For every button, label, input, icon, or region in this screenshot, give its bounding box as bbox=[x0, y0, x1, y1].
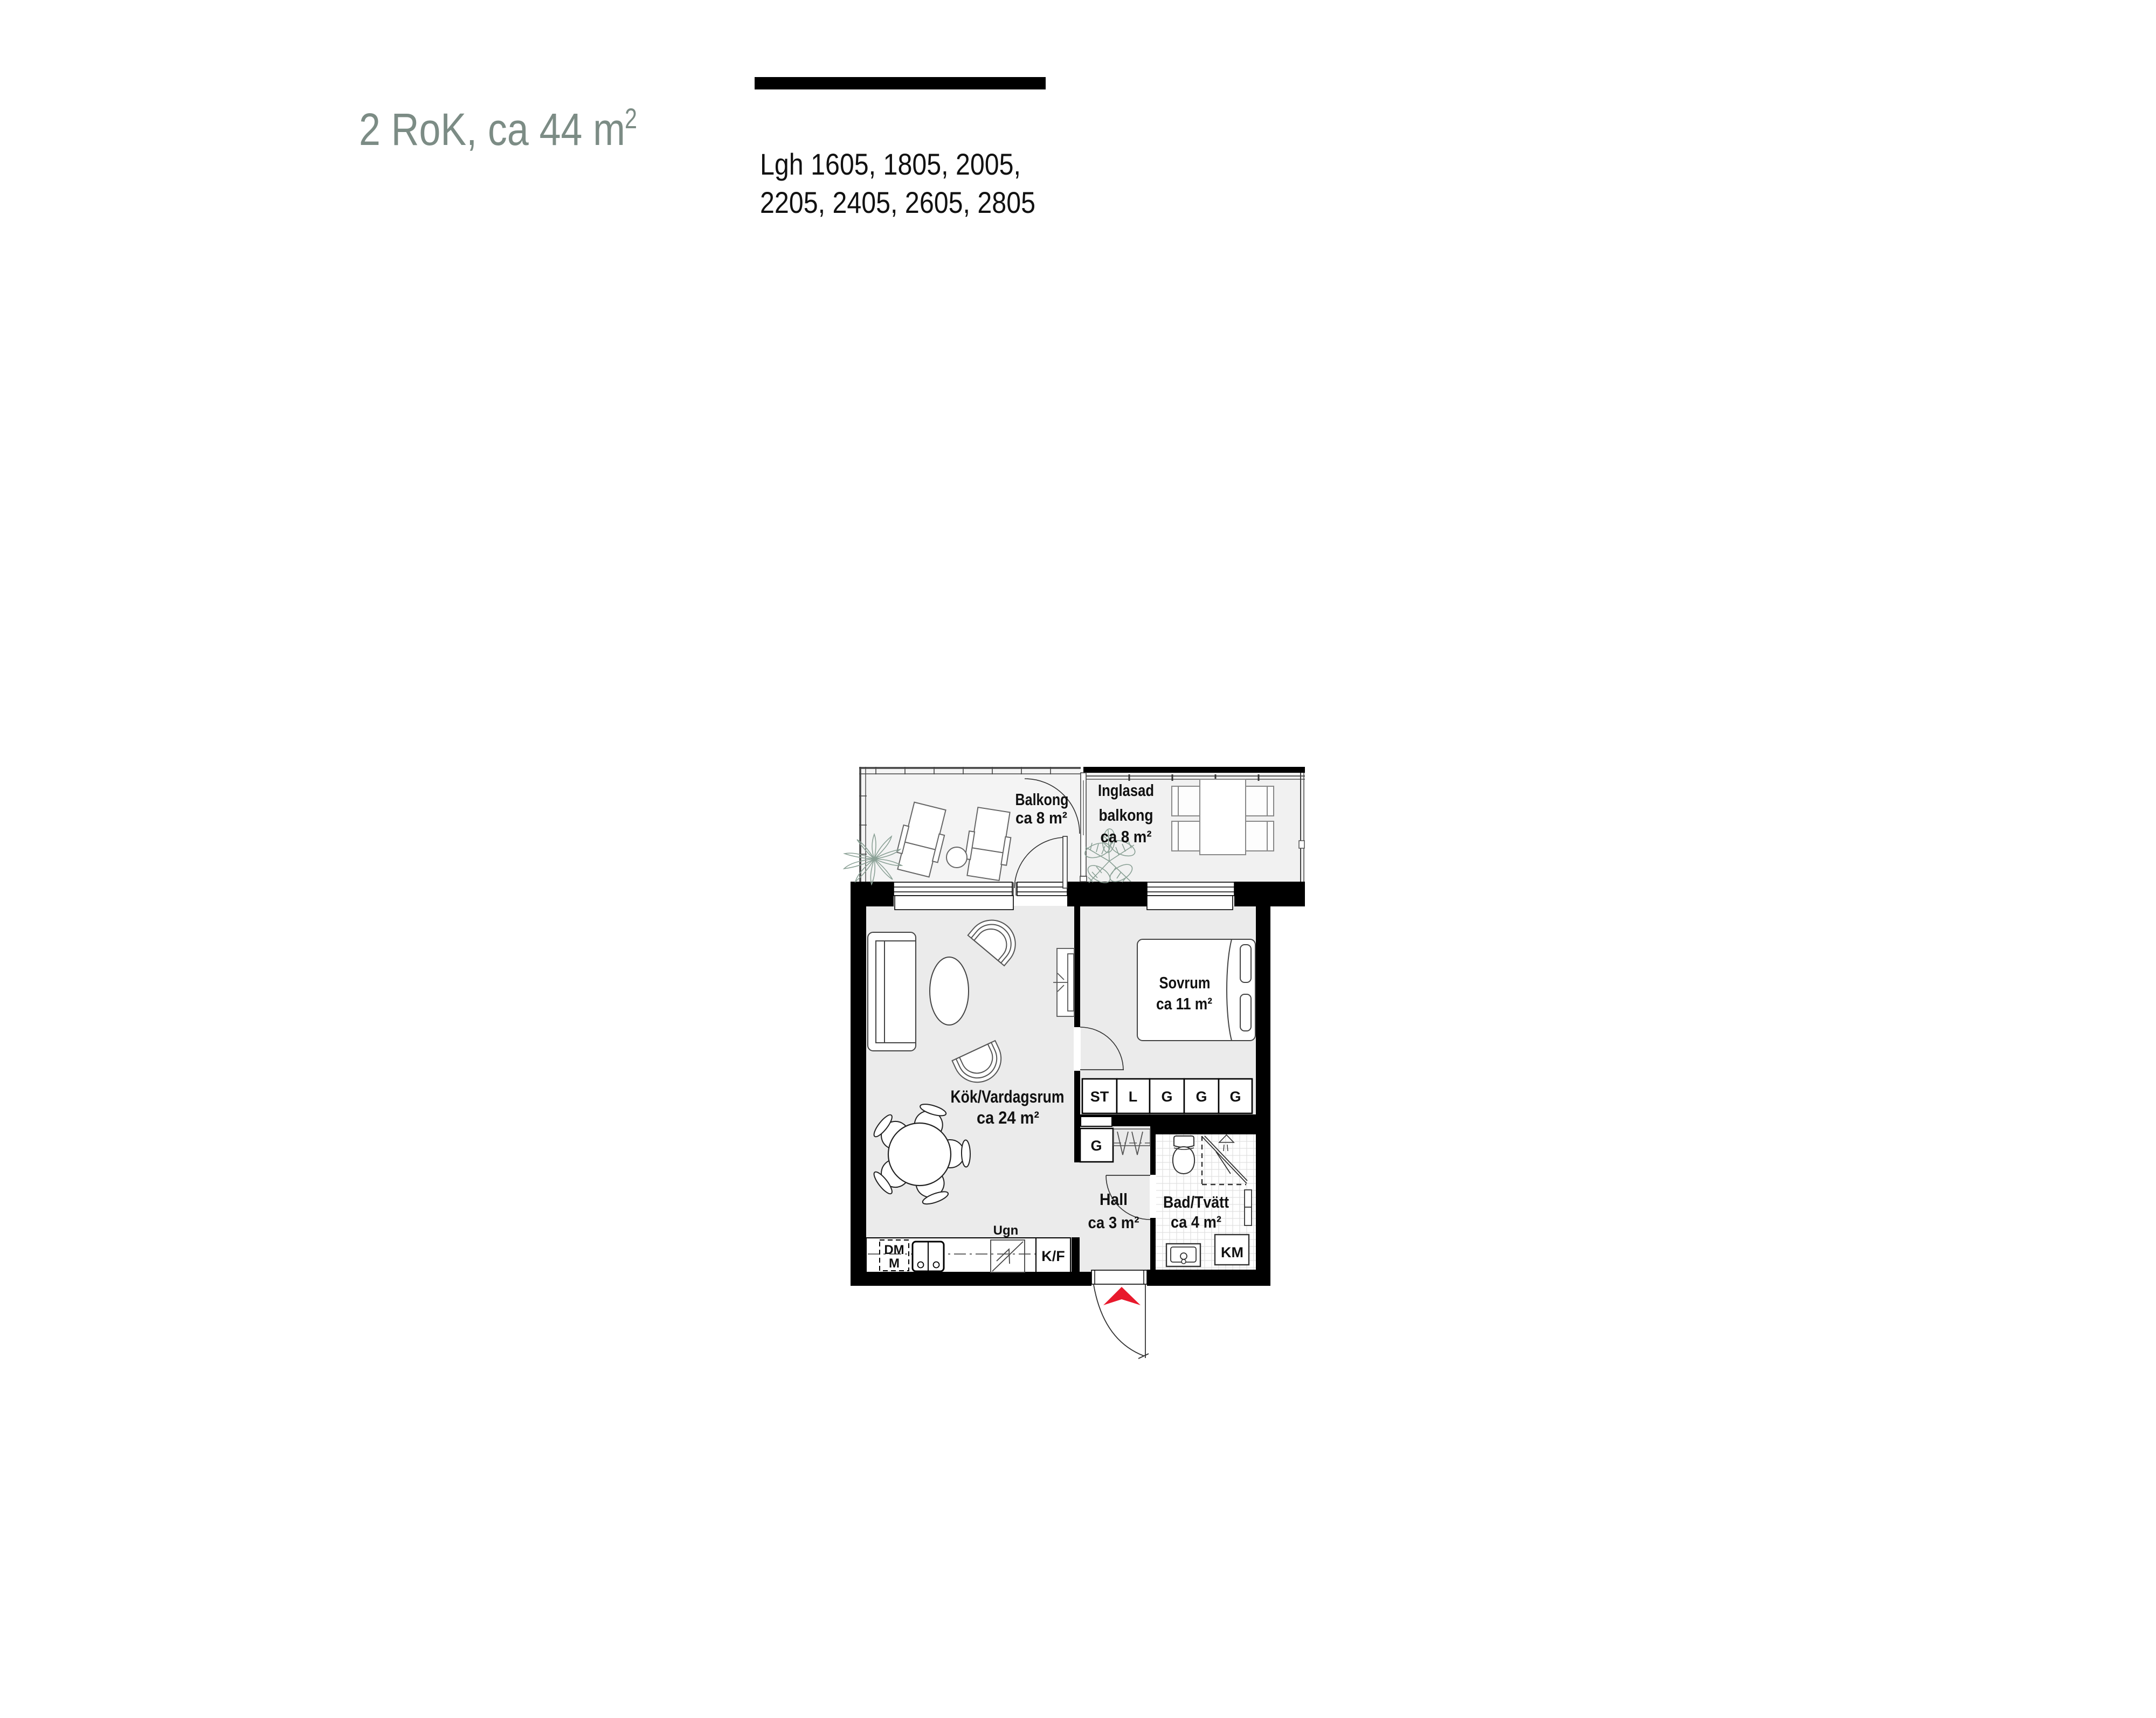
svg-text:2205, 2405, 2605, 2805: 2205, 2405, 2605, 2805 bbox=[760, 185, 1035, 219]
svg-text:L: L bbox=[1129, 1089, 1138, 1105]
svg-text:ca 8 m²: ca 8 m² bbox=[1101, 827, 1152, 846]
svg-text:K/F: K/F bbox=[1041, 1248, 1065, 1264]
svg-text:ST: ST bbox=[1090, 1089, 1109, 1105]
svg-text:ca 11 m²: ca 11 m² bbox=[1156, 994, 1212, 1013]
svg-text:Balkong: Balkong bbox=[1015, 790, 1069, 809]
svg-text:Inglasad: Inglasad bbox=[1098, 781, 1154, 800]
svg-text:balkong: balkong bbox=[1099, 806, 1153, 825]
svg-text:ca 24 m²: ca 24 m² bbox=[977, 1108, 1039, 1127]
svg-text:ca 3 m²: ca 3 m² bbox=[1088, 1213, 1139, 1232]
svg-text:G: G bbox=[1090, 1138, 1102, 1154]
svg-text:Kök/Vardagsrum: Kök/Vardagsrum bbox=[951, 1087, 1065, 1106]
svg-text:Bad/Tvätt: Bad/Tvätt bbox=[1163, 1193, 1229, 1211]
svg-text:G: G bbox=[1229, 1089, 1241, 1105]
svg-text:Sovrum: Sovrum bbox=[1159, 973, 1211, 992]
svg-text:ca 8 m²: ca 8 m² bbox=[1015, 808, 1067, 827]
svg-text:M: M bbox=[889, 1256, 900, 1271]
svg-text:2 RoK, ca 44 m: 2 RoK, ca 44 m bbox=[359, 104, 625, 155]
svg-text:G: G bbox=[1161, 1089, 1172, 1105]
svg-text:Lgh 1605, 1805, 2005,: Lgh 1605, 1805, 2005, bbox=[760, 147, 1021, 181]
svg-text:KM: KM bbox=[1221, 1244, 1243, 1260]
svg-text:Hall: Hall bbox=[1100, 1190, 1128, 1209]
svg-text:2: 2 bbox=[625, 103, 637, 135]
svg-text:ca 4 m²: ca 4 m² bbox=[1171, 1213, 1221, 1231]
svg-text:G: G bbox=[1196, 1089, 1207, 1105]
svg-text:DM: DM bbox=[884, 1243, 904, 1257]
svg-text:Ugn: Ugn bbox=[993, 1223, 1019, 1238]
